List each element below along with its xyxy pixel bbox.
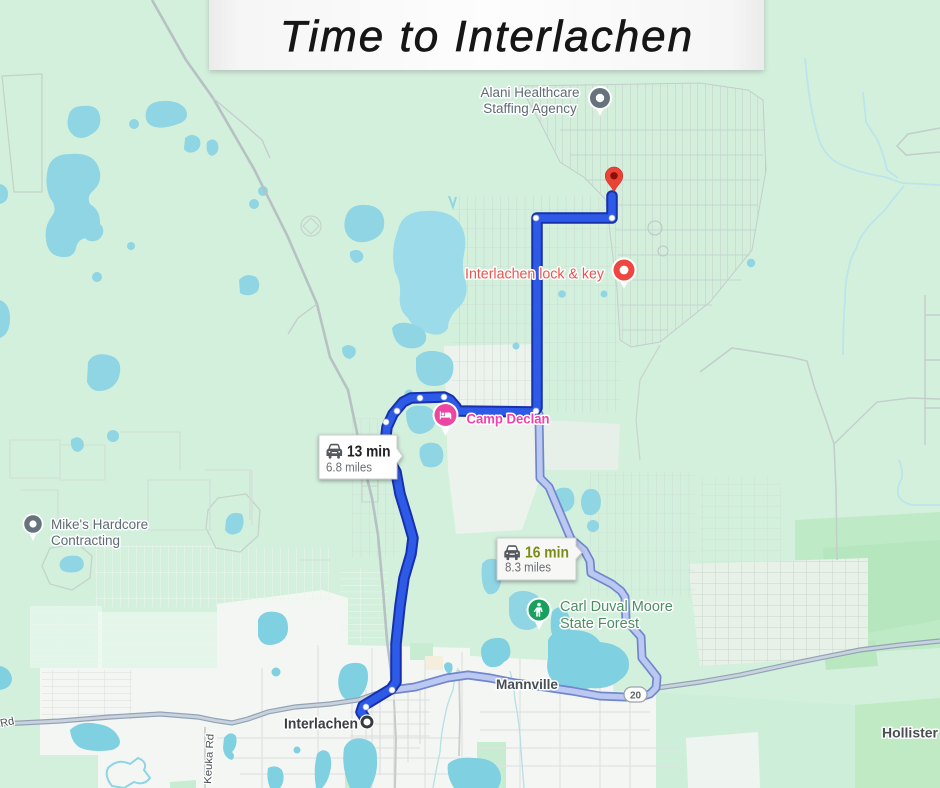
svg-text:20: 20 (630, 691, 642, 702)
svg-text:Contracting: Contracting (51, 533, 120, 548)
svg-text:Mannville: Mannville (496, 676, 558, 692)
svg-text:Time to Interlachen: Time to Interlachen (280, 12, 694, 61)
svg-text:Interlachen: Interlachen (284, 717, 358, 733)
svg-text:State Forest: State Forest (560, 616, 639, 632)
svg-text:13 min: 13 min (347, 444, 391, 461)
svg-text:6.8 miles: 6.8 miles (326, 461, 372, 475)
svg-text:Staffing Agency: Staffing Agency (483, 101, 577, 116)
svg-text:Camp Declan: Camp Declan (467, 411, 550, 427)
svg-text:Mike's Hardcore: Mike's Hardcore (51, 517, 148, 532)
svg-text:Hollister: Hollister (882, 725, 939, 741)
svg-text:Alani Healthcare: Alani Healthcare (480, 85, 579, 100)
svg-text:Carl Duval Moore: Carl Duval Moore (560, 599, 673, 615)
svg-text:Interlachen lock & key: Interlachen lock & key (465, 266, 604, 283)
svg-text:8.3 miles: 8.3 miles (505, 561, 551, 575)
svg-text:16 min: 16 min (525, 545, 569, 562)
